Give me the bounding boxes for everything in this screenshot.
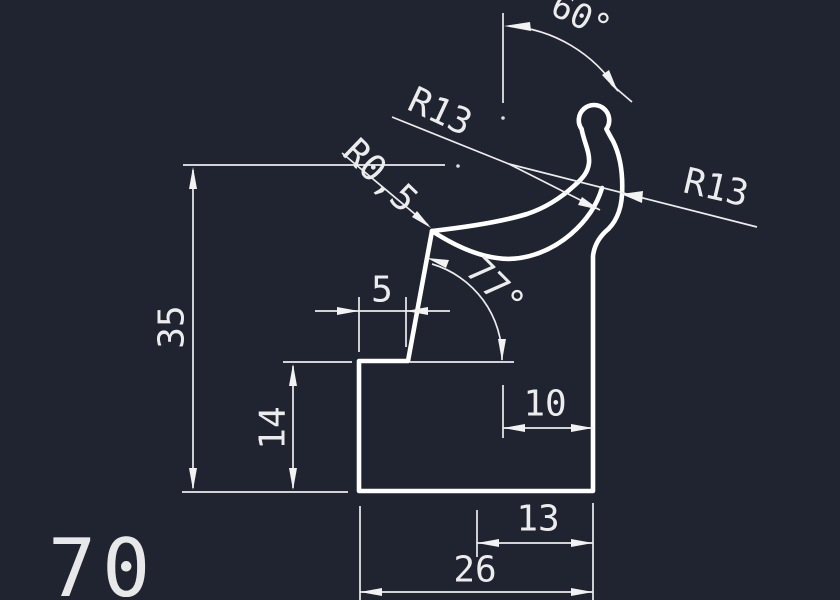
dim-5-label[interactable]: 5	[371, 270, 393, 311]
dim-14-label[interactable]: 14	[253, 406, 294, 449]
dim-35-label[interactable]: 35	[152, 305, 193, 348]
dim-10-label[interactable]: 10	[523, 384, 566, 425]
arc-center-marker-2	[456, 164, 460, 168]
sheet-number-label[interactable]: 70	[48, 522, 156, 600]
dim-13-label[interactable]: 13	[516, 499, 559, 540]
cad-drawing-canvas[interactable]: 35 14 5 77° 10 13	[0, 0, 840, 600]
dim-26-label[interactable]: 26	[453, 550, 496, 591]
arc-center-marker-1	[501, 116, 505, 120]
